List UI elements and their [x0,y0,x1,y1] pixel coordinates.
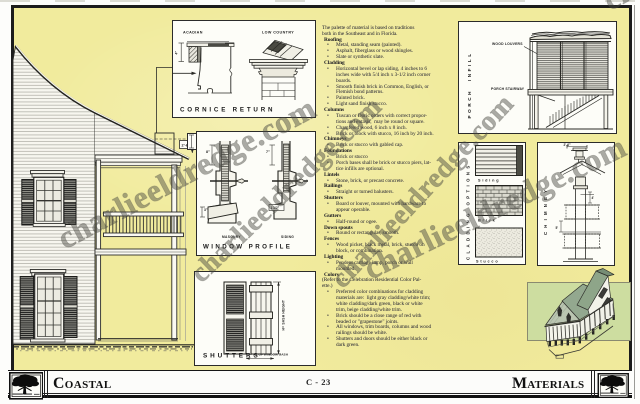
svg-text:SHUTTERS: SHUTTERS [203,353,261,360]
svg-text:2’-6”: 2’-6” [564,143,571,147]
svg-text:Siding: Siding [478,179,500,183]
svg-text:SIDING: SIDING [281,235,294,239]
svg-text:ACADIAN: ACADIAN [183,31,203,35]
svg-text:PORCH INFILL: PORCH INFILL [467,51,472,118]
svg-text:5’: 5’ [556,226,559,230]
svg-text:4’: 4’ [592,196,595,200]
svg-text:WOOD LOUVERS: WOOD LOUVERS [492,42,523,46]
svg-text:LOW COUNTRY: LOW COUNTRY [262,31,294,35]
svg-text:Stucco: Stucco [476,260,499,264]
svg-text:3”: 3” [204,208,208,212]
svg-text:H= SASH HEIGHT: H= SASH HEIGHT [282,300,286,331]
svg-text:4”: 4” [175,51,179,55]
